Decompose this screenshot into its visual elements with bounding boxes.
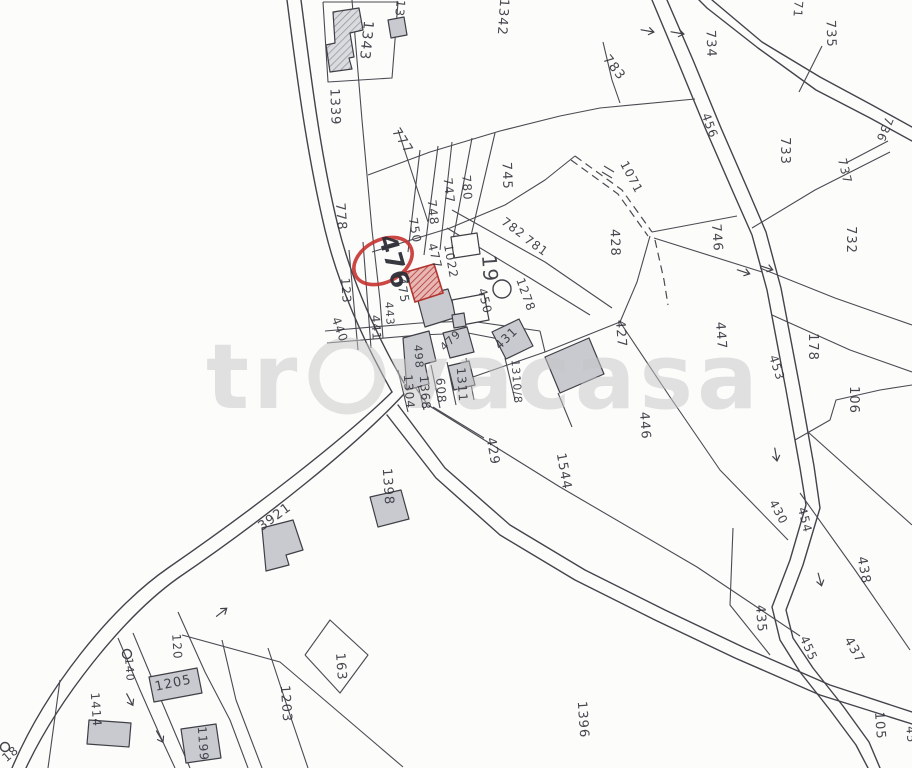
parcel-label-140: 140 (122, 657, 137, 682)
parcel-label-123: 123 (338, 277, 354, 304)
parcel-label-453: 453 (766, 353, 787, 382)
parcel-label-178: 178 (805, 333, 820, 361)
parcel-label-447: 447 (712, 321, 729, 350)
parcel-label-428: 428 (607, 229, 623, 257)
parcel-label-1304: 1304 (401, 374, 417, 409)
parcel-label-443: 443 (382, 301, 397, 326)
road-southwest-a (12, 392, 392, 768)
parcel-label-746: 746 (708, 223, 725, 252)
parcel-label-1311: 1311 (454, 367, 470, 402)
parcel-label-1398: 1398 (379, 468, 397, 506)
watermark-o-ring (314, 343, 380, 409)
parcel-label-608: 608 (433, 377, 449, 404)
parcel-label-440: 440 (329, 315, 351, 344)
parcel-label-18: 18 (0, 743, 22, 765)
parcel-label-747: 747 (441, 177, 458, 204)
parcel-label-430: 430 (766, 497, 791, 526)
parcel-label-750: 750 (406, 216, 424, 244)
building-small-top (388, 17, 407, 38)
parcel-label-1414: 1414 (88, 692, 104, 727)
parcel-labels-layer: 1343131342133977778371734735736733737732… (0, 0, 912, 765)
watermark-text-left: tr (206, 325, 301, 430)
road-topright-a (712, 0, 912, 127)
parcel-label-780: 780 (459, 174, 475, 201)
parcel-label-435: 435 (752, 604, 769, 633)
parcel-label-438: 438 (854, 555, 874, 585)
parcel-label-441: 441 (368, 314, 384, 341)
parcel-label-745: 745 (499, 162, 515, 190)
parcel-label-106: 106 (846, 386, 861, 414)
parcel-label-734: 734 (703, 30, 719, 58)
parcel-label-783: 783 (599, 52, 628, 83)
parcel-label-13: 13 (392, 0, 408, 18)
boundary-tick-marks (602, 166, 614, 178)
watermark: tr vacasa (206, 325, 762, 430)
parcel-label-777: 777 (388, 125, 415, 157)
parcel-label-1339: 1339 (326, 88, 342, 126)
parcel-label-456: 456 (699, 111, 721, 140)
parcel-label-732: 732 (843, 226, 858, 254)
parcel-label-437: 437 (841, 634, 868, 666)
road-southwest-b (26, 394, 404, 768)
parcel-label-120: 120 (169, 633, 185, 660)
tank-symbol (493, 280, 511, 298)
parcel-label-1199: 1199 (195, 726, 211, 761)
parcel-label-733: 733 (777, 137, 792, 165)
parcel-label-19: 19 (477, 254, 503, 283)
parcel-label-429: 429 (483, 436, 503, 466)
parcel-label-737: 737 (835, 157, 855, 186)
parcel-label-1368: 1368 (417, 375, 433, 410)
parcel-label-778: 778 (332, 202, 349, 231)
parcel-label-735: 735 (823, 20, 839, 48)
parcel-label-498: 498 (411, 344, 426, 369)
road-southeast-a (398, 405, 912, 712)
parcel-label-1342: 1342 (494, 0, 512, 36)
parcel-label-781: 781 (522, 232, 551, 259)
road-southeast-b (387, 415, 912, 724)
parcel-label-163: 163 (332, 652, 349, 681)
parcel-label-71: 71 (790, 0, 805, 18)
parcel-label-1396: 1396 (574, 701, 592, 739)
parcel-label-446: 446 (636, 411, 653, 440)
parcel-label-736: 736 (873, 115, 896, 144)
parcel-label-748: 748 (425, 199, 442, 226)
cadastral-map: tr vacasa 134313134213397777837173473573… (0, 0, 912, 768)
parcel-label-105: 105 (871, 711, 888, 740)
road-topright-b (699, 0, 912, 141)
parcel-label-45: 45 (903, 726, 912, 744)
parcel-label-1278: 1278 (513, 276, 538, 313)
map-canvas: tr vacasa 134313134213397777837173473573… (0, 0, 912, 768)
parcel-label-427: 427 (612, 319, 629, 348)
parcel-label-782: 782 (499, 214, 528, 241)
parcel-label-1203: 1203 (277, 685, 295, 723)
